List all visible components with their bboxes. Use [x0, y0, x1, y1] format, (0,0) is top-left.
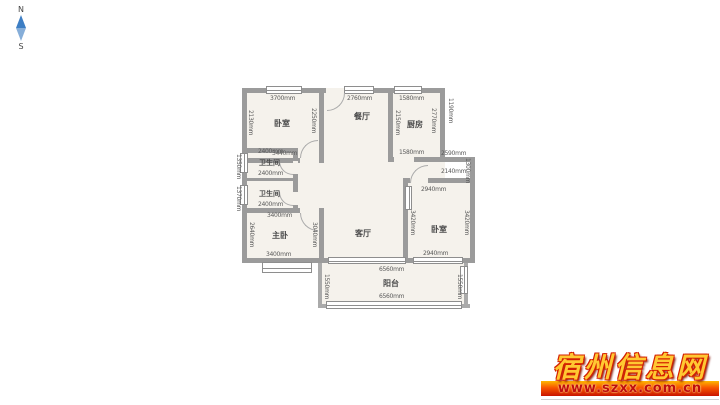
dimension-label: 1350mm [235, 154, 242, 179]
room-label-dining: 餐厅 [354, 111, 370, 122]
watermark: 宿州信息网 www.szxx.com.cn [541, 352, 719, 400]
window [266, 86, 302, 94]
dimension-label: 1300mm [464, 158, 471, 183]
wall-segment [470, 178, 475, 263]
wall-segment [319, 208, 324, 263]
wall-segment [242, 178, 298, 181]
watermark-site-name: 宿州信息网 [541, 352, 719, 384]
room-label-living: 客厅 [355, 228, 371, 239]
bay-window [262, 262, 312, 273]
dimension-label: 1580mm [399, 95, 424, 102]
wall-segment [319, 88, 324, 163]
dimension-label: 2250mm [310, 108, 317, 133]
door-opening [300, 158, 319, 163]
window [413, 257, 463, 264]
window [405, 186, 412, 210]
dimension-label: 3040mm [311, 222, 318, 247]
dimension-label: 2590mm [441, 150, 466, 157]
sliding-door-window [328, 257, 406, 264]
watermark-divider [541, 399, 719, 400]
dimension-label: 2400mm [258, 170, 283, 177]
dimension-label: 3400mm [266, 251, 291, 258]
dimension-label: 2140mm [441, 168, 466, 175]
compass: N S [8, 5, 34, 51]
dimension-label: 2940mm [421, 186, 446, 193]
dimension-label: 2150mm [394, 110, 401, 135]
dimension-label: 2400mm [258, 201, 283, 208]
door-opening [293, 192, 298, 205]
dimension-label: 2400mm [258, 148, 283, 155]
room-label-bedroom-right: 卧室 [431, 224, 447, 235]
compass-needle-icon [16, 15, 26, 28]
dimension-label: 2640mm [248, 222, 255, 247]
balcony-rail [318, 263, 322, 308]
dimension-label: 1550mm [323, 274, 330, 299]
dimension-label: 6560mm [379, 293, 404, 300]
room-label-bathroom-1: 卫生间 [259, 158, 280, 168]
dimension-label: 2770mm [430, 108, 437, 133]
dimension-label: 1580mm [399, 149, 424, 156]
dimension-label: 3700mm [270, 95, 295, 102]
dimension-label: 1550mm [456, 274, 463, 299]
compass-south-label: S [8, 42, 34, 51]
door-opening [394, 157, 414, 162]
dimension-label: 1190mm [447, 98, 454, 123]
door-opening [293, 161, 298, 174]
window [394, 86, 422, 94]
room-label-bathroom-2: 卫生间 [259, 189, 280, 199]
wall-segment [388, 88, 393, 162]
room-bedroom-right [408, 183, 470, 258]
dimension-label: 3420mm [463, 210, 470, 235]
dimension-label: 3420mm [409, 210, 416, 235]
dimension-label: 1370mm [235, 186, 242, 211]
screenshot: N S [0, 0, 720, 405]
compass-north-label: N [8, 5, 34, 14]
room-living-strip [388, 162, 403, 258]
dimension-label: 2130mm [247, 110, 254, 135]
dimension-label: 2940mm [423, 250, 448, 257]
window [326, 301, 462, 309]
window [344, 86, 374, 94]
compass-needle-icon [16, 28, 26, 41]
watermark-url: www.szxx.com.cn [541, 381, 719, 396]
dimension-label: 2760mm [347, 95, 372, 102]
dimension-label: 3400mm [267, 212, 292, 219]
dimension-label: 6560mm [379, 266, 404, 273]
room-label-bedroom-top-left: 卧室 [274, 118, 290, 129]
room-label-master-bedroom: 主卧 [272, 230, 288, 241]
room-label-balcony: 阳台 [383, 278, 399, 289]
room-label-kitchen: 厨房 [407, 119, 423, 130]
